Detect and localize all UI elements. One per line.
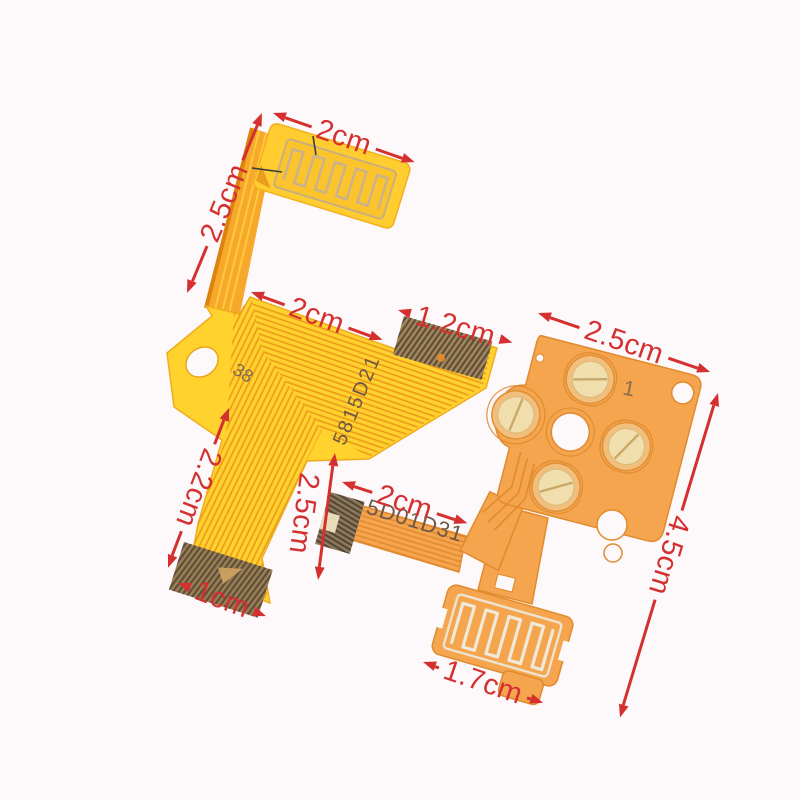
flex-cables-illustration	[0, 0, 800, 800]
right-flex-bottom-contact-pad	[419, 582, 579, 711]
lower-small-hole	[604, 544, 622, 562]
product-photo-flex-cables: 5815D21 38 5D01D31 1 2cm 2.5cm 2cm 1.2cm…	[0, 0, 800, 800]
right-flex-ribbon-connector	[315, 492, 364, 554]
left-flex-contact-pad	[252, 122, 412, 230]
lower-screw-hole	[597, 510, 627, 540]
